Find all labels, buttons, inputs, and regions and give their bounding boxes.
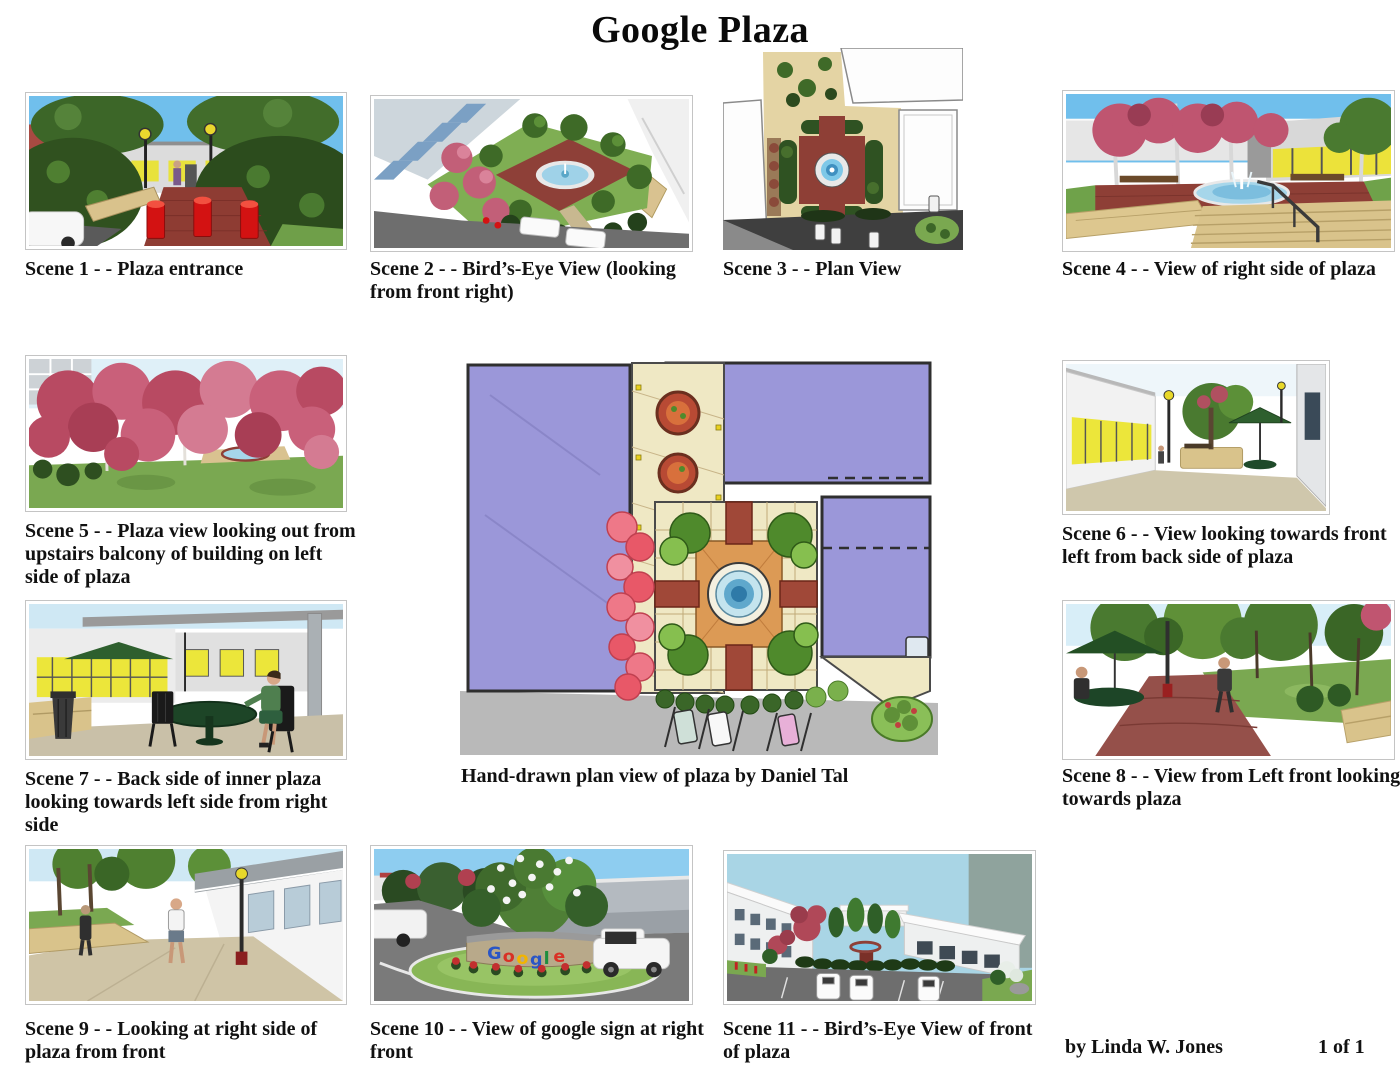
- hand-drawn-plan: [460, 355, 938, 755]
- scene-2-illustration: [374, 99, 689, 248]
- scene-3-illustration: [723, 48, 963, 250]
- scene-2-caption: Scene 2 - - Bird’s-Eye View (looking fro…: [370, 258, 700, 304]
- scene-9-illustration: [29, 849, 343, 1001]
- scene-4-illustration: [1066, 94, 1391, 248]
- scene-6-illustration: [1066, 364, 1326, 511]
- scene-8-caption: Scene 8 - - View from Left front looking…: [1062, 765, 1400, 811]
- scene-11-illustration: [727, 854, 1032, 1001]
- scene-7-illustration: [29, 604, 343, 756]
- bollards: [147, 197, 258, 239]
- scene-4-thumbnail: [1062, 90, 1395, 252]
- scene-2-thumbnail: [370, 95, 693, 252]
- scene-5-thumbnail: [25, 355, 347, 512]
- scene-4-caption: Scene 4 - - View of right side of plaza: [1062, 258, 1397, 281]
- scene-1-caption: Scene 1 - - Plaza entrance: [25, 258, 355, 281]
- scene-3-caption: Scene 3 - - Plan View: [723, 258, 1043, 281]
- scene-8-thumbnail: [1062, 600, 1395, 760]
- page-title: Google Plaza: [0, 8, 1400, 52]
- scene-1-illustration: [29, 96, 343, 246]
- scene-10-caption: Scene 10 - - View of google sign at righ…: [370, 1018, 705, 1064]
- scene-5-illustration: [29, 359, 343, 508]
- scene-3-thumbnail: [723, 48, 963, 250]
- author-credit: by Linda W. Jones: [1065, 1036, 1325, 1059]
- scene-7-thumbnail: [25, 600, 347, 760]
- scene-6-thumbnail: [1062, 360, 1330, 515]
- scene-7-caption: Scene 7 - - Back side of inner plaza loo…: [25, 768, 360, 838]
- scene-9-thumbnail: [25, 845, 347, 1005]
- scene-10-thumbnail: G o o g l e: [370, 845, 693, 1005]
- scene-8-illustration: [1066, 604, 1391, 756]
- google-letter-l: l: [544, 949, 550, 969]
- scene-6-caption: Scene 6 - - View looking towards front l…: [1062, 523, 1400, 569]
- scene-5-caption: Scene 5 - - Plaza view looking out from …: [25, 520, 360, 590]
- google-letter-g1: G: [487, 944, 501, 964]
- scene-11-caption: Scene 11 - - Bird’s-Eye View of front of…: [723, 1018, 1053, 1064]
- plan-caption: Hand-drawn plan view of plaza by Daniel …: [461, 765, 939, 788]
- scene-11-thumbnail: [723, 850, 1036, 1005]
- scene-9-caption: Scene 9 - - Looking at right side of pla…: [25, 1018, 360, 1064]
- google-letter-o1: o: [503, 947, 515, 967]
- storyboard-page: Google Plaza: [0, 0, 1400, 1081]
- scene-1-thumbnail: [25, 92, 347, 250]
- hand-drawn-plan-illustration: [460, 355, 938, 755]
- scene-10-illustration: G o o g l e: [374, 849, 689, 1001]
- page-number: 1 of 1: [1318, 1036, 1398, 1059]
